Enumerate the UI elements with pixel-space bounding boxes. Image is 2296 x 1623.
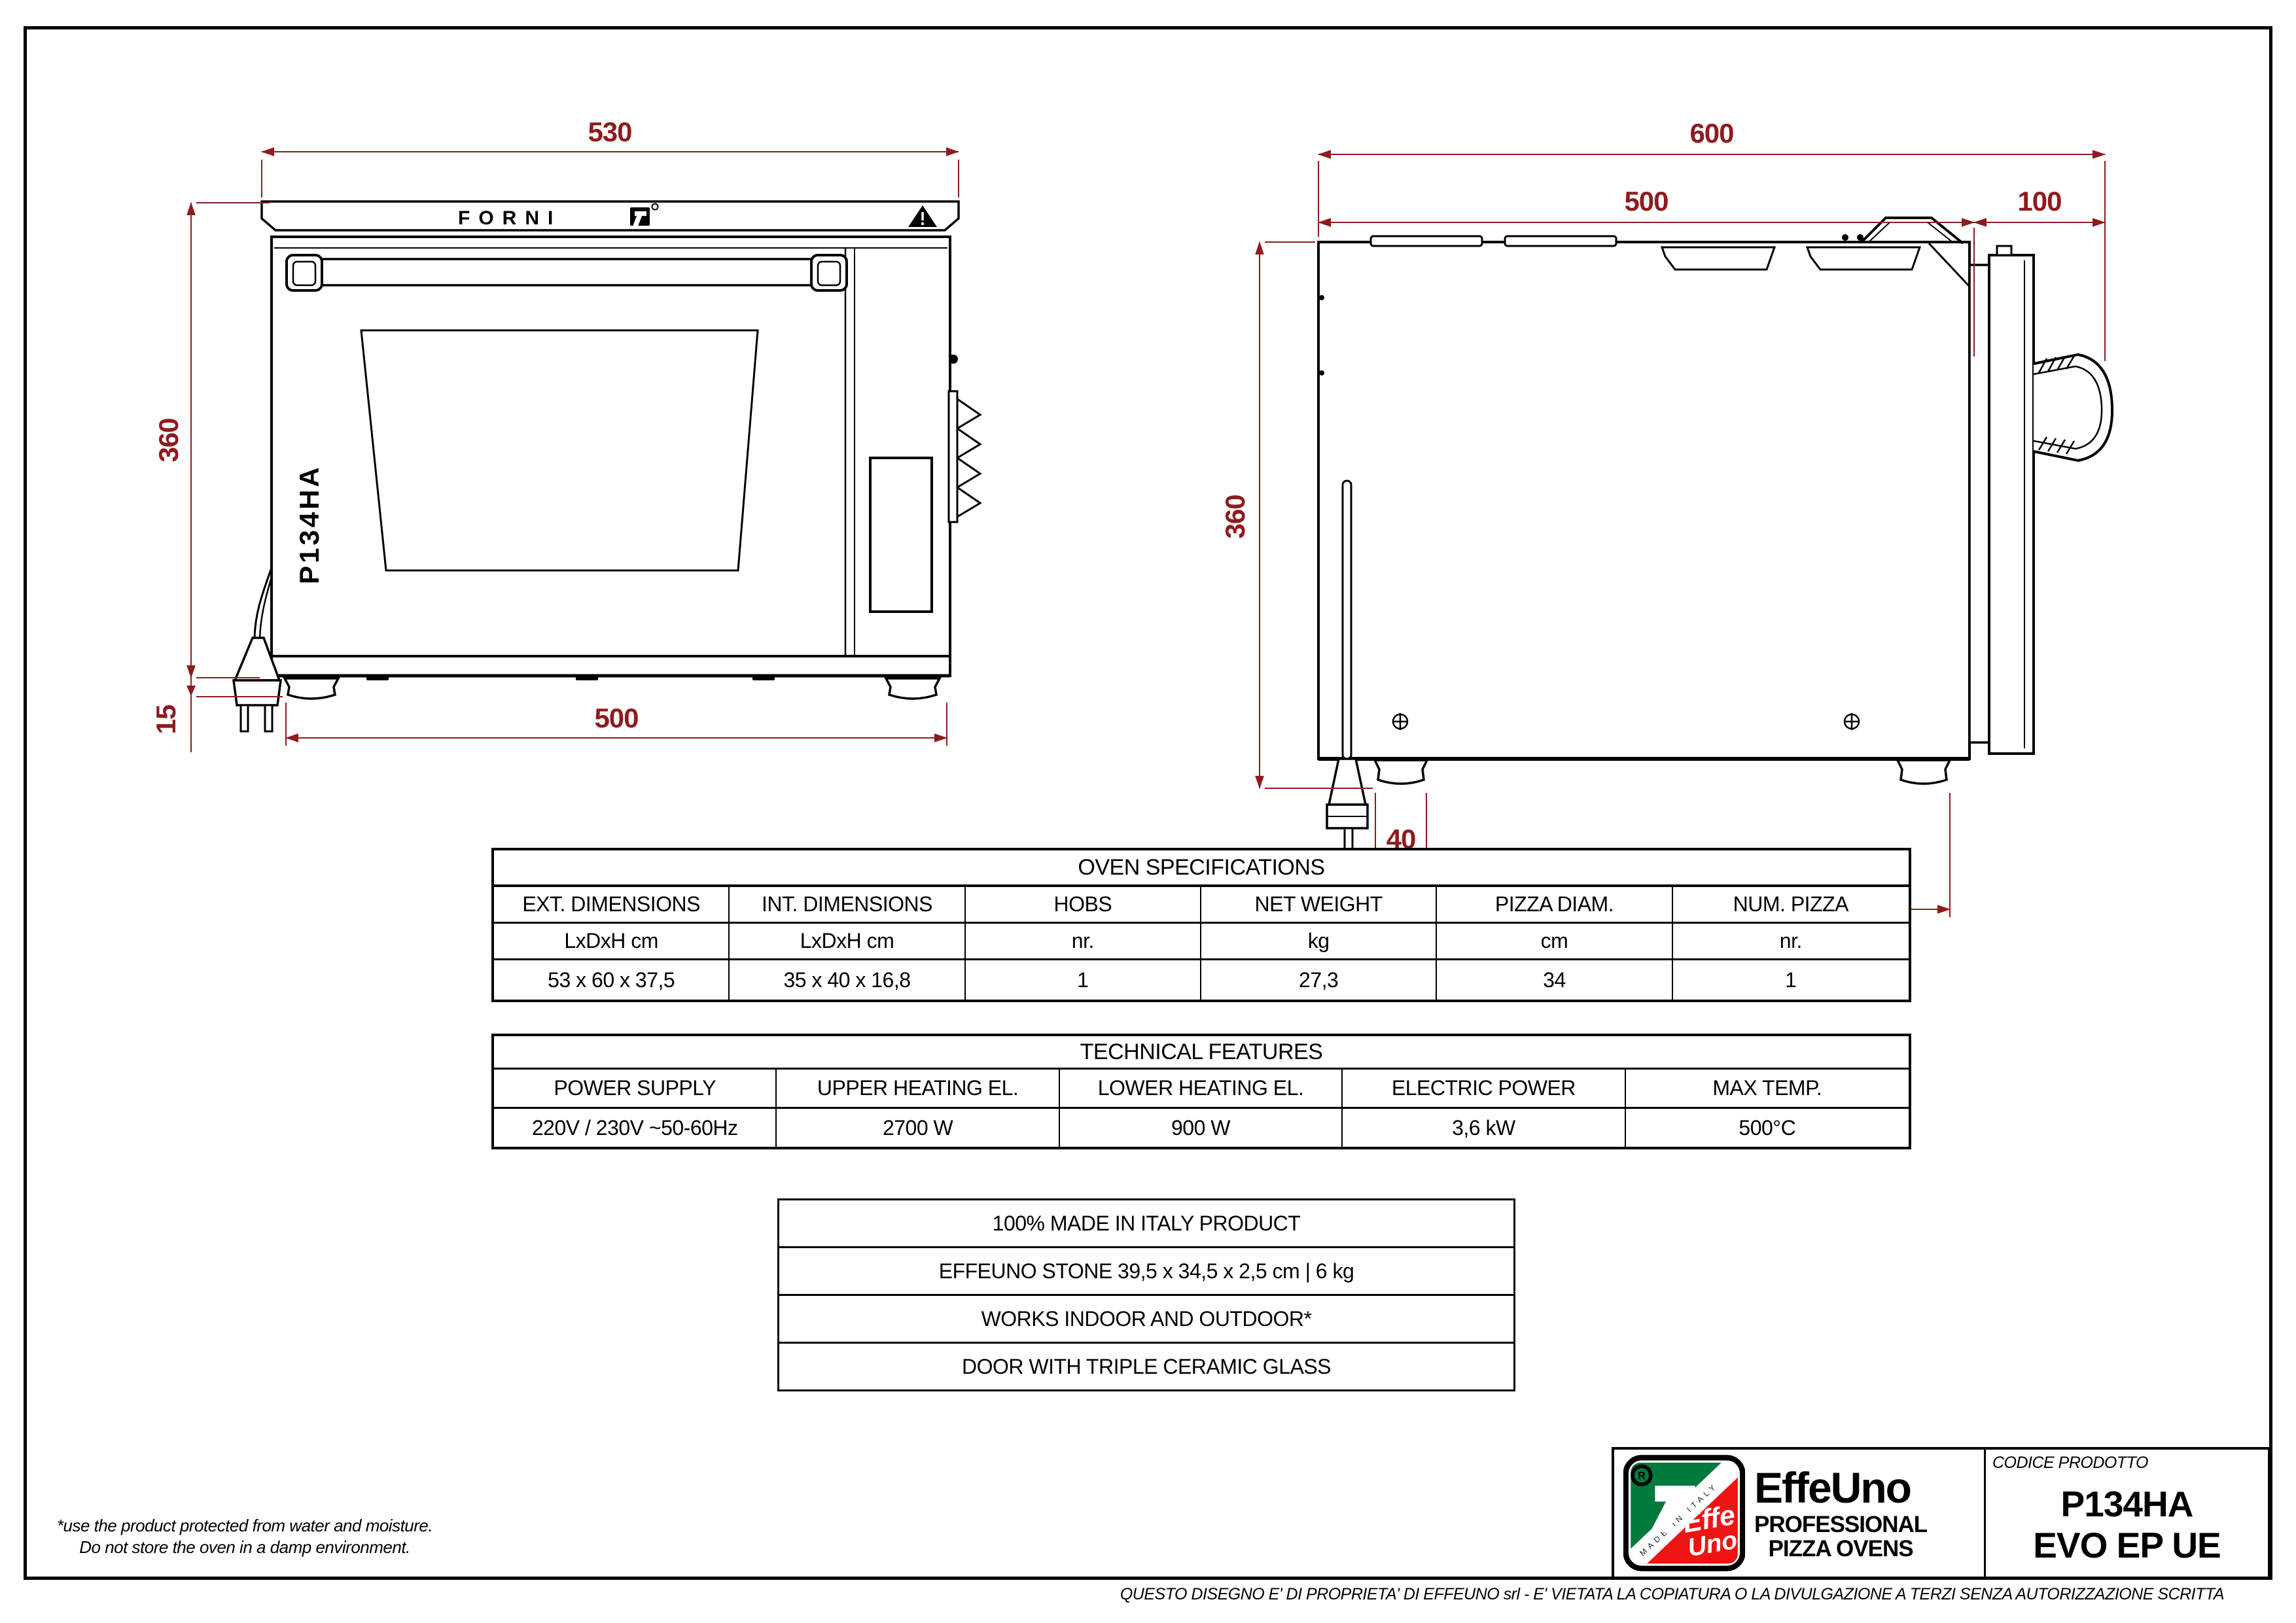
- tech-header: POWER SUPPLY: [494, 1070, 777, 1109]
- effeuno-logo: MADE IN ITALY Effe Uno R: [1623, 1455, 1745, 1571]
- dim-360-front: 360: [153, 418, 184, 462]
- dim-500-front: 500: [594, 703, 638, 733]
- spec-header: PIZZA DIAM.: [1437, 887, 1672, 924]
- spec-unit: nr.: [966, 924, 1201, 960]
- copyright-disclaimer: QUESTO DISEGNO E' DI PROPRIETA' DI EFFEU…: [1120, 1585, 2224, 1604]
- front-foot-left: [285, 678, 338, 699]
- oven-specifications-table: OVEN SPECIFICATIONS EXT. DIMENSIONS INT.…: [491, 848, 1911, 1002]
- side-handle: [2034, 355, 2112, 461]
- side-screw-dot: [1319, 295, 1324, 300]
- spec-unit: LxDxH cm: [730, 924, 965, 960]
- side-foot-left: [1375, 760, 1427, 784]
- feature-row: 100% MADE IN ITALY PRODUCT: [779, 1200, 1513, 1248]
- title-block: MADE IN ITALY Effe Uno R EffeUno PROFESS…: [1612, 1447, 2270, 1579]
- tech-value: 500°C: [1626, 1109, 1909, 1147]
- spec-value: 1: [966, 960, 1201, 1000]
- spec-table-title: OVEN SPECIFICATIONS: [494, 850, 1909, 887]
- dim-15: 15: [150, 705, 181, 734]
- product-code-line1: P134HA: [1986, 1484, 2268, 1525]
- base-clip: [576, 676, 598, 680]
- front-foot-right: [886, 678, 940, 699]
- dim-530: 530: [588, 116, 631, 147]
- technical-features-table: TECHNICAL FEATURES POWER SUPPLY UPPER HE…: [491, 1034, 1911, 1149]
- spec-unit: nr.: [1673, 924, 1909, 960]
- front-lid: [262, 201, 959, 230]
- front-view: FORNI: [150, 116, 980, 752]
- spec-table-grid: EXT. DIMENSIONS INT. DIMENSIONS HOBS NET…: [494, 887, 1909, 1000]
- datasheet-page: FORNI: [0, 0, 2296, 1623]
- tech-value: 3,6 kW: [1343, 1109, 1625, 1147]
- dim-100: 100: [2017, 186, 2061, 217]
- tech-table-grid: POWER SUPPLY UPPER HEATING EL. LOWER HEA…: [494, 1070, 1909, 1147]
- product-code-line2: EVO EP UE: [1986, 1525, 2268, 1566]
- footnote-line-2: Do not store the oven in a damp environm…: [42, 1537, 448, 1558]
- spec-unit: LxDxH cm: [494, 924, 730, 960]
- side-top-bracket: [1842, 218, 1963, 243]
- base-clip: [752, 676, 775, 680]
- dim-600: 600: [1689, 118, 1733, 148]
- product-code: P134HA EVO EP UE: [1986, 1484, 2268, 1567]
- feature-row: DOOR WITH TRIPLE CERAMIC GLASS: [779, 1344, 1513, 1389]
- dim-360-side: 360: [1220, 495, 1250, 538]
- tech-header: LOWER HEATING EL.: [1060, 1070, 1343, 1109]
- spec-value: 1: [1673, 960, 1909, 1000]
- usage-footnote: *use the product protected from water an…: [42, 1515, 448, 1558]
- feature-row: WORKS INDOOR AND OUTDOOR*: [779, 1296, 1513, 1344]
- side-door: [1969, 246, 2034, 754]
- tech-header: UPPER HEATING EL.: [777, 1070, 1059, 1109]
- side-foot-right: [1898, 760, 1950, 784]
- title-block-code-cell: CODICE PRODOTTO P134HA EVO EP UE: [1986, 1450, 2268, 1577]
- spec-value: 34: [1437, 960, 1672, 1000]
- spec-unit: cm: [1437, 924, 1672, 960]
- title-block-brand-cell: MADE IN ITALY Effe Uno R EffeUno PROFESS…: [1614, 1450, 1986, 1577]
- front-base: [272, 656, 950, 676]
- brand-text-column: EffeUno PROFESSIONAL PIZZA OVENS: [1754, 1466, 1927, 1560]
- feature-row: EFFEUNO STONE 39,5 x 34,5 x 2,5 cm | 6 k…: [779, 1248, 1513, 1296]
- tech-value: 220V / 230V ~50-60Hz: [494, 1109, 777, 1147]
- tech-header: ELECTRIC POWER: [1343, 1070, 1625, 1109]
- features-list: 100% MADE IN ITALY PRODUCT EFFEUNO STONE…: [777, 1198, 1515, 1391]
- spec-header: EXT. DIMENSIONS: [494, 887, 730, 924]
- brand-name: EffeUno: [1754, 1466, 1927, 1509]
- spec-value: 27,3: [1201, 960, 1437, 1000]
- logo-registered-letter: R: [1638, 1471, 1646, 1482]
- tech-value: 900 W: [1060, 1109, 1343, 1147]
- footnote-line-1: *use the product protected from water an…: [42, 1515, 448, 1537]
- side-screw-dot: [1319, 370, 1324, 375]
- front-side-knob: [949, 355, 980, 522]
- spec-header: NUM. PIZZA: [1673, 887, 1909, 924]
- spec-value: 35 x 40 x 16,8: [730, 960, 965, 1000]
- brand-subtitle-2: PIZZA OVENS: [1754, 1537, 1927, 1560]
- tech-value: 2700 W: [777, 1109, 1059, 1147]
- side-body: [1318, 242, 1969, 759]
- base-clip: [366, 676, 389, 680]
- spec-header: NET WEIGHT: [1201, 887, 1437, 924]
- front-brand-text: FORNI: [458, 207, 561, 229]
- front-door-handle: [287, 255, 847, 290]
- spec-header: HOBS: [966, 887, 1201, 924]
- spec-value: 53 x 60 x 37,5: [494, 960, 730, 1000]
- dim-500-side: 500: [1624, 186, 1668, 217]
- side-view: 600 500 100 360 40 440: [1220, 118, 2112, 917]
- tech-table-title: TECHNICAL FEATURES: [494, 1036, 1909, 1070]
- front-model-text: P134HA: [294, 464, 325, 584]
- tech-header: MAX TEMP.: [1626, 1070, 1909, 1109]
- product-code-label: CODICE PRODOTTO: [1992, 1454, 2261, 1473]
- brand-subtitle-1: PROFESSIONAL: [1754, 1513, 1927, 1536]
- spec-unit: kg: [1201, 924, 1437, 960]
- spec-header: INT. DIMENSIONS: [730, 887, 965, 924]
